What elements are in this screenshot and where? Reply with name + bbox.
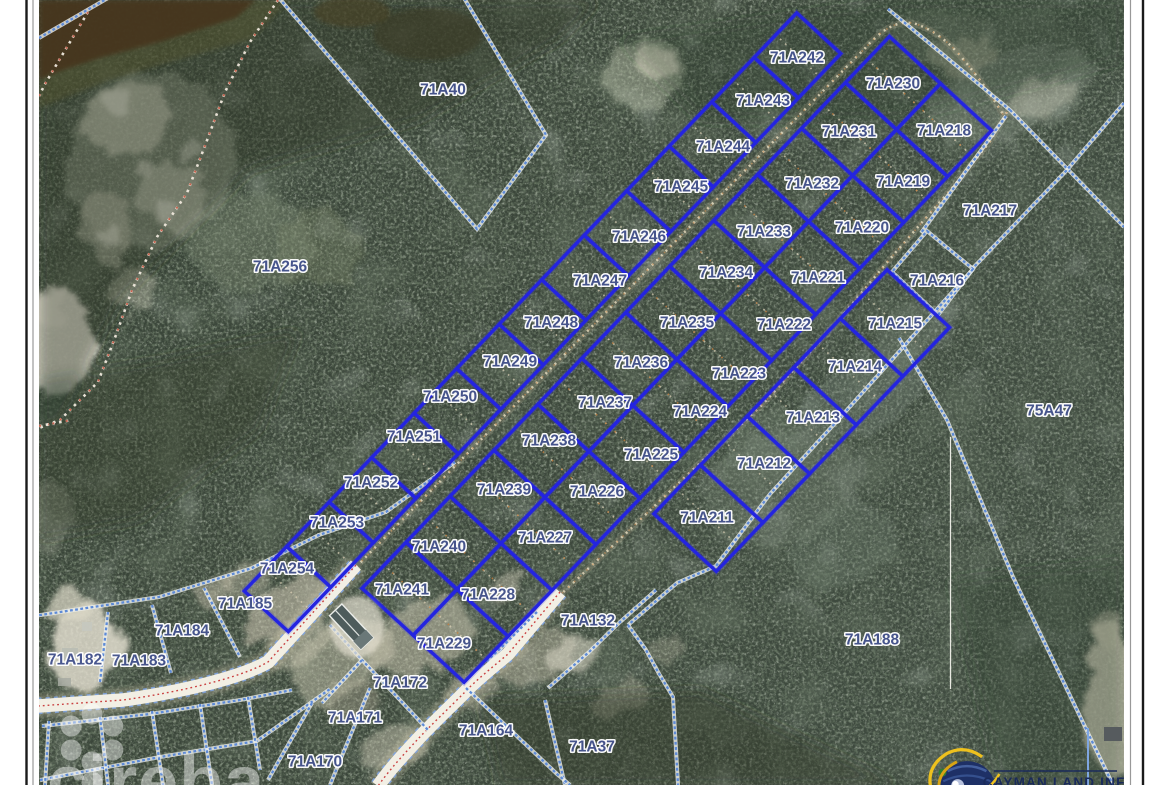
svg-text:71A182: 71A182	[48, 652, 102, 669]
svg-text:71A242: 71A242	[770, 50, 824, 67]
svg-text:71A236: 71A236	[614, 355, 669, 372]
svg-text:71A212: 71A212	[737, 456, 791, 473]
svg-text:71A223: 71A223	[712, 366, 767, 383]
svg-text:71A254: 71A254	[260, 561, 315, 578]
svg-text:71A132: 71A132	[561, 613, 615, 630]
svg-text:71A184: 71A184	[155, 623, 210, 640]
svg-text:71A240: 71A240	[412, 539, 466, 556]
svg-text:75A47: 75A47	[1026, 403, 1072, 420]
svg-text:cireba: cireba	[47, 742, 265, 785]
svg-text:71A256: 71A256	[253, 259, 308, 276]
svg-text:71A246: 71A246	[612, 229, 667, 246]
svg-text:71A228: 71A228	[461, 587, 516, 604]
svg-text:71A220: 71A220	[835, 220, 889, 237]
svg-text:71A237: 71A237	[578, 395, 632, 412]
svg-text:71A235: 71A235	[660, 315, 715, 332]
svg-text:71A217: 71A217	[963, 203, 1017, 220]
svg-text:71A244: 71A244	[696, 139, 751, 156]
svg-text:71A170: 71A170	[288, 754, 342, 771]
svg-text:71A232: 71A232	[785, 176, 839, 193]
svg-text:71A243: 71A243	[736, 93, 791, 110]
svg-text:71A218: 71A218	[917, 123, 972, 140]
svg-text:71A164: 71A164	[459, 723, 514, 740]
svg-text:71A183: 71A183	[112, 653, 167, 670]
svg-text:71A213: 71A213	[786, 410, 841, 427]
svg-text:71A219: 71A219	[876, 174, 931, 191]
svg-text:71A37: 71A37	[569, 739, 615, 756]
svg-text:71A249: 71A249	[483, 354, 538, 371]
svg-text:71A221: 71A221	[791, 270, 846, 287]
svg-text:71A229: 71A229	[417, 636, 472, 653]
svg-text:71A238: 71A238	[522, 433, 577, 450]
svg-text:71A172: 71A172	[373, 675, 427, 692]
svg-text:71A234: 71A234	[699, 265, 754, 282]
svg-text:71A214: 71A214	[828, 359, 883, 376]
svg-text:71A233: 71A233	[737, 224, 792, 241]
svg-text:71A40: 71A40	[420, 82, 466, 99]
svg-text:71A251: 71A251	[387, 429, 442, 446]
svg-text:71A239: 71A239	[477, 482, 532, 499]
svg-text:CAYMAN LAND INFO: CAYMAN LAND INFO	[983, 775, 1137, 785]
svg-text:71A185: 71A185	[218, 596, 273, 613]
svg-text:71A171: 71A171	[328, 710, 383, 727]
svg-text:71A188: 71A188	[845, 632, 900, 649]
svg-text:71A250: 71A250	[423, 389, 477, 406]
svg-text:71A226: 71A226	[570, 484, 625, 501]
svg-text:71A215: 71A215	[868, 316, 923, 333]
svg-text:71A230: 71A230	[866, 76, 920, 93]
svg-text:71A211: 71A211	[680, 510, 734, 527]
svg-text:71A227: 71A227	[518, 530, 572, 547]
svg-text:71A248: 71A248	[524, 315, 579, 332]
svg-text:71A231: 71A231	[822, 124, 877, 141]
svg-text:71A224: 71A224	[673, 404, 728, 421]
svg-text:71A241: 71A241	[375, 582, 430, 599]
svg-text:71A252: 71A252	[344, 475, 398, 492]
svg-text:71A225: 71A225	[624, 447, 679, 464]
svg-text:71A222: 71A222	[757, 317, 811, 334]
svg-text:71A253: 71A253	[310, 515, 365, 532]
svg-text:71A247: 71A247	[573, 273, 627, 290]
svg-text:71A216: 71A216	[910, 273, 965, 290]
svg-text:71A245: 71A245	[654, 179, 709, 196]
